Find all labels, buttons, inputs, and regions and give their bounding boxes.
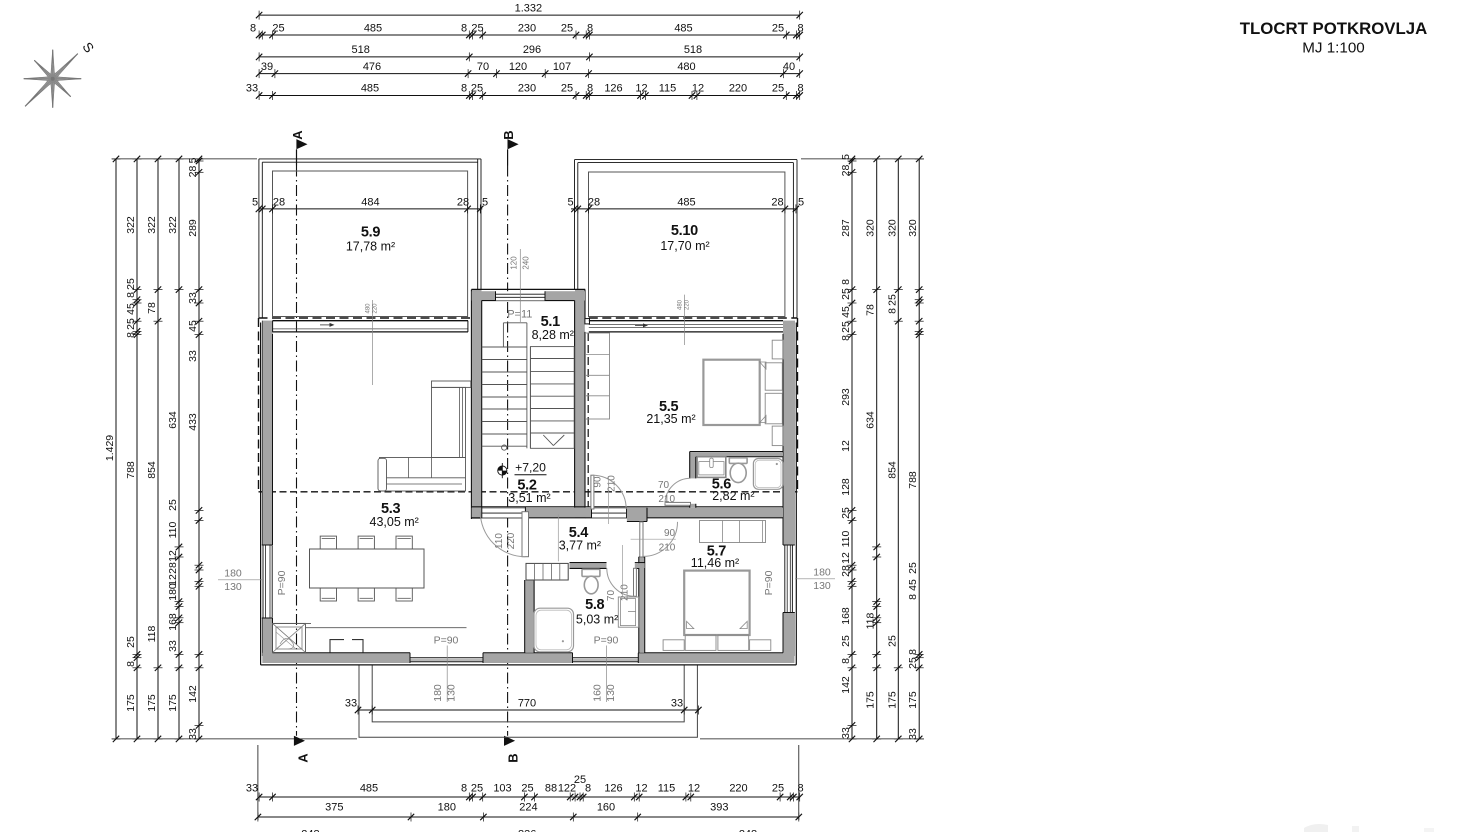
svg-text:12: 12 — [167, 550, 179, 562]
svg-text:12: 12 — [692, 83, 704, 95]
svg-text:480: 480 — [677, 299, 683, 310]
svg-text:240: 240 — [522, 256, 531, 270]
svg-text:224: 224 — [519, 802, 537, 814]
svg-text:12: 12 — [840, 552, 852, 564]
svg-text:115: 115 — [658, 783, 676, 795]
svg-text:11,46 m²: 11,46 m² — [691, 556, 739, 570]
svg-text:220: 220 — [729, 783, 747, 795]
svg-text:5: 5 — [482, 196, 488, 208]
svg-text:12: 12 — [635, 83, 647, 95]
svg-text:518: 518 — [352, 44, 370, 56]
svg-text:8: 8 — [886, 308, 898, 314]
svg-text:320: 320 — [886, 219, 898, 237]
svg-text:P=90: P=90 — [594, 635, 619, 647]
svg-text:12: 12 — [635, 783, 647, 795]
svg-text:90: 90 — [664, 528, 676, 539]
svg-text:P=90: P=90 — [434, 635, 459, 647]
svg-text:8: 8 — [250, 23, 256, 35]
svg-text:17,78 m²: 17,78 m² — [346, 240, 395, 254]
svg-text:130: 130 — [813, 580, 831, 592]
svg-text:28: 28 — [771, 196, 783, 208]
svg-text:180: 180 — [167, 583, 179, 601]
svg-text:160: 160 — [592, 684, 604, 702]
svg-text:45: 45 — [907, 579, 919, 591]
svg-text:480: 480 — [366, 303, 372, 314]
svg-text:433: 433 — [187, 413, 199, 431]
svg-text:25: 25 — [840, 507, 852, 519]
svg-text:110: 110 — [494, 533, 505, 549]
svg-text:33: 33 — [187, 350, 199, 362]
svg-text:70: 70 — [658, 480, 670, 491]
svg-text:39: 39 — [261, 61, 273, 73]
svg-text:175: 175 — [907, 691, 919, 709]
svg-text:118: 118 — [865, 612, 877, 629]
svg-text:25: 25 — [561, 83, 573, 95]
svg-text:25: 25 — [886, 635, 898, 647]
svg-text:28: 28 — [273, 196, 285, 208]
svg-text:21,35 m²: 21,35 m² — [646, 412, 695, 426]
svg-text:788: 788 — [907, 471, 919, 489]
svg-text:90: 90 — [593, 476, 604, 488]
svg-text:TLOCRT POTKROVLJA: TLOCRT POTKROVLJA — [1240, 19, 1427, 38]
svg-text:142: 142 — [840, 676, 852, 694]
svg-text:33: 33 — [246, 83, 258, 95]
svg-text:25: 25 — [125, 636, 137, 648]
svg-text:289: 289 — [187, 219, 199, 237]
svg-text:175: 175 — [167, 694, 179, 712]
svg-text:210: 210 — [658, 494, 675, 505]
svg-text:25: 25 — [125, 318, 137, 330]
svg-text:25: 25 — [521, 783, 533, 795]
svg-text:8: 8 — [587, 83, 593, 95]
svg-text:788: 788 — [125, 461, 137, 479]
svg-text:12: 12 — [688, 783, 700, 795]
svg-text:25: 25 — [907, 562, 919, 574]
svg-text:5: 5 — [567, 196, 573, 208]
svg-text:8: 8 — [797, 23, 803, 35]
svg-text:25: 25 — [574, 774, 586, 786]
svg-text:248: 248 — [301, 829, 319, 832]
svg-text:8: 8 — [461, 783, 467, 795]
svg-text:8,28 m²: 8,28 m² — [532, 328, 574, 342]
svg-text:8: 8 — [125, 332, 137, 338]
svg-text:485: 485 — [677, 196, 695, 208]
svg-text:120: 120 — [510, 256, 519, 270]
svg-text:43,05 m²: 43,05 m² — [370, 515, 419, 529]
svg-text:322: 322 — [167, 216, 179, 234]
svg-text:8: 8 — [797, 83, 803, 95]
svg-text:88: 88 — [545, 783, 557, 795]
svg-text:296: 296 — [523, 44, 541, 56]
svg-text:P=90: P=90 — [763, 570, 775, 595]
svg-text:28: 28 — [457, 196, 469, 208]
svg-text:B: B — [501, 130, 516, 139]
svg-text:8: 8 — [840, 279, 852, 285]
svg-text:8: 8 — [907, 649, 919, 655]
svg-text:180: 180 — [224, 568, 242, 580]
svg-text:8: 8 — [461, 23, 467, 35]
svg-text:175: 175 — [125, 694, 137, 712]
svg-text:836: 836 — [518, 829, 536, 832]
svg-text:322: 322 — [125, 216, 137, 234]
svg-text:25: 25 — [907, 657, 919, 669]
svg-text:220: 220 — [506, 532, 517, 549]
svg-text:25: 25 — [840, 635, 852, 647]
svg-text:480: 480 — [677, 61, 695, 73]
svg-text:28: 28 — [187, 166, 199, 178]
svg-text:320: 320 — [865, 219, 877, 237]
svg-text:17,70 m²: 17,70 m² — [660, 239, 709, 253]
svg-text:110: 110 — [167, 521, 179, 538]
svg-text:115: 115 — [659, 83, 677, 95]
svg-text:P=11: P=11 — [507, 309, 532, 321]
svg-text:+7,20: +7,20 — [515, 461, 546, 475]
svg-text:3,51 m²: 3,51 m² — [508, 491, 550, 505]
svg-text:220: 220 — [373, 303, 379, 314]
svg-text:25: 25 — [886, 294, 898, 306]
svg-text:320: 320 — [907, 219, 919, 237]
svg-text:168: 168 — [840, 607, 852, 625]
svg-text:1.429: 1.429 — [104, 435, 116, 461]
svg-text:33: 33 — [671, 698, 683, 710]
svg-text:A: A — [296, 753, 311, 763]
svg-text:770: 770 — [518, 698, 536, 710]
svg-text:2,82 m²: 2,82 m² — [712, 489, 754, 503]
svg-text:33: 33 — [345, 698, 357, 710]
svg-text:70: 70 — [606, 590, 617, 602]
svg-text:12: 12 — [840, 440, 852, 452]
svg-text:5: 5 — [252, 196, 258, 208]
svg-text:MJ 1:100: MJ 1:100 — [1302, 40, 1364, 57]
svg-text:5: 5 — [187, 157, 199, 163]
svg-text:5: 5 — [798, 196, 804, 208]
svg-text:25: 25 — [471, 83, 483, 95]
svg-text:8: 8 — [125, 292, 137, 298]
svg-text:8: 8 — [461, 83, 467, 95]
svg-text:103: 103 — [493, 783, 511, 795]
svg-text:248: 248 — [739, 829, 757, 832]
svg-text:130: 130 — [224, 581, 242, 593]
svg-text:B: B — [506, 753, 521, 762]
svg-text:180: 180 — [438, 802, 456, 814]
svg-text:634: 634 — [865, 411, 877, 429]
svg-text:126: 126 — [604, 83, 622, 95]
svg-text:168: 168 — [167, 613, 179, 631]
svg-text:180: 180 — [813, 567, 831, 579]
svg-text:33: 33 — [907, 728, 919, 740]
svg-text:210: 210 — [659, 543, 676, 554]
svg-text:130: 130 — [446, 684, 458, 702]
svg-text:25: 25 — [561, 23, 573, 35]
svg-text:28: 28 — [840, 565, 852, 577]
svg-text:3,77 m²: 3,77 m² — [559, 538, 601, 552]
svg-text:25: 25 — [272, 23, 284, 35]
svg-text:230: 230 — [518, 23, 536, 35]
svg-text:118: 118 — [146, 625, 158, 642]
svg-text:485: 485 — [361, 83, 379, 95]
svg-text:28: 28 — [840, 165, 852, 177]
svg-text:220: 220 — [684, 299, 690, 310]
svg-text:160: 160 — [597, 802, 615, 814]
svg-text:33: 33 — [840, 727, 852, 739]
svg-text:25: 25 — [471, 783, 483, 795]
svg-text:128: 128 — [840, 478, 852, 496]
svg-text:25: 25 — [772, 783, 784, 795]
svg-text:142: 142 — [187, 685, 199, 703]
svg-text:107: 107 — [553, 61, 571, 73]
svg-text:25: 25 — [772, 23, 784, 35]
svg-text:70: 70 — [477, 61, 489, 73]
svg-text:485: 485 — [364, 23, 382, 35]
svg-text:8: 8 — [840, 658, 852, 664]
svg-text:33: 33 — [187, 292, 199, 304]
svg-text:33: 33 — [167, 640, 179, 652]
svg-text:5: 5 — [840, 154, 852, 160]
svg-text:28: 28 — [588, 196, 600, 208]
svg-text:P=90: P=90 — [276, 570, 288, 595]
svg-text:45: 45 — [187, 320, 199, 332]
svg-text:175: 175 — [886, 691, 898, 709]
svg-text:25: 25 — [167, 499, 179, 511]
svg-text:A: A — [290, 130, 305, 140]
svg-text:293: 293 — [840, 388, 852, 406]
svg-text:322: 322 — [146, 216, 158, 234]
svg-text:485: 485 — [674, 23, 692, 35]
svg-text:40: 40 — [783, 61, 795, 73]
svg-text:25: 25 — [840, 288, 852, 300]
svg-text:375: 375 — [325, 802, 343, 814]
svg-text:78: 78 — [865, 304, 877, 316]
svg-text:8: 8 — [587, 23, 593, 35]
svg-text:130: 130 — [605, 684, 617, 702]
svg-text:180: 180 — [432, 684, 444, 702]
svg-text:25: 25 — [471, 23, 483, 35]
svg-text:33: 33 — [246, 783, 258, 795]
svg-text:126: 126 — [604, 783, 622, 795]
svg-text:110: 110 — [840, 530, 852, 547]
svg-text:45: 45 — [840, 306, 852, 318]
svg-text:287: 287 — [840, 219, 852, 237]
svg-text:393: 393 — [710, 802, 728, 814]
svg-text:5,03 m²: 5,03 m² — [576, 613, 618, 627]
svg-text:230: 230 — [518, 83, 536, 95]
svg-text:78: 78 — [146, 302, 158, 314]
svg-text:8: 8 — [840, 335, 852, 341]
svg-text:8: 8 — [797, 783, 803, 795]
svg-text:485: 485 — [360, 783, 378, 795]
svg-text:25: 25 — [840, 321, 852, 333]
svg-text:476: 476 — [363, 61, 381, 73]
svg-text:33: 33 — [187, 728, 199, 740]
svg-text:8: 8 — [125, 661, 137, 667]
svg-text:120: 120 — [509, 61, 527, 73]
svg-text:5.8: 5.8 — [585, 597, 604, 613]
svg-text:854: 854 — [146, 461, 158, 479]
svg-text:634: 634 — [167, 411, 179, 429]
svg-text:484: 484 — [361, 196, 379, 208]
svg-text:5.10: 5.10 — [671, 223, 698, 239]
svg-text:5.9: 5.9 — [361, 225, 380, 241]
svg-text:8: 8 — [907, 594, 919, 600]
svg-text:175: 175 — [146, 694, 158, 712]
svg-text:45: 45 — [125, 303, 137, 315]
svg-text:25: 25 — [772, 83, 784, 95]
svg-text:25: 25 — [125, 278, 137, 290]
svg-text:854: 854 — [886, 461, 898, 479]
svg-text:1.332: 1.332 — [515, 3, 543, 15]
svg-text:518: 518 — [684, 44, 702, 56]
svg-text:28: 28 — [167, 562, 179, 574]
svg-text:220: 220 — [729, 83, 747, 95]
svg-text:175: 175 — [865, 691, 877, 709]
